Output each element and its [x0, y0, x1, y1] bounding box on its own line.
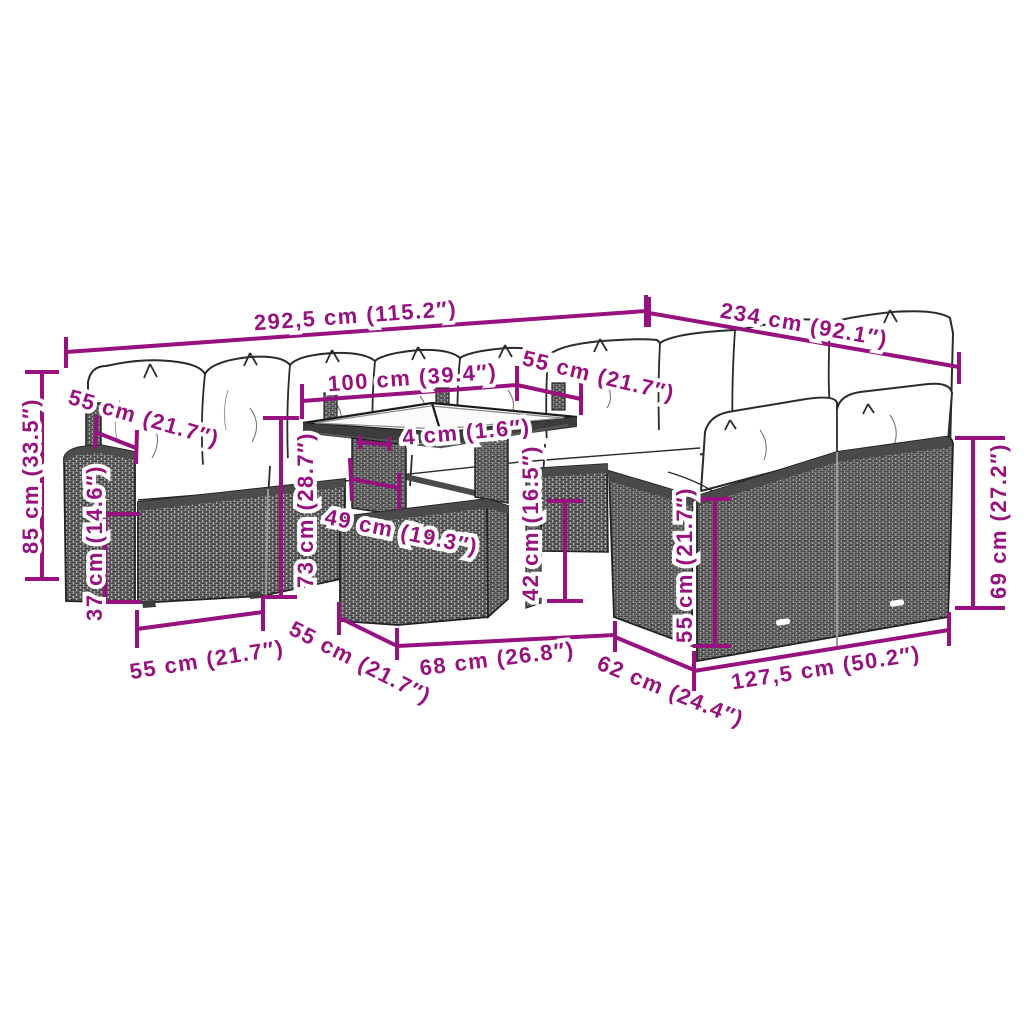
svg-text:55 cm (21.7″): 55 cm (21.7″)	[672, 487, 697, 643]
svg-text:37 cm (14.6″): 37 cm (14.6″)	[82, 465, 107, 621]
svg-text:69 cm (27.2″): 69 cm (27.2″)	[986, 443, 1011, 599]
svg-text:73 cm (28.7″): 73 cm (28.7″)	[293, 432, 318, 588]
svg-text:42 cm (16.5″): 42 cm (16.5″)	[518, 445, 543, 601]
svg-text:85 cm (33.5″): 85 cm (33.5″)	[18, 398, 43, 554]
